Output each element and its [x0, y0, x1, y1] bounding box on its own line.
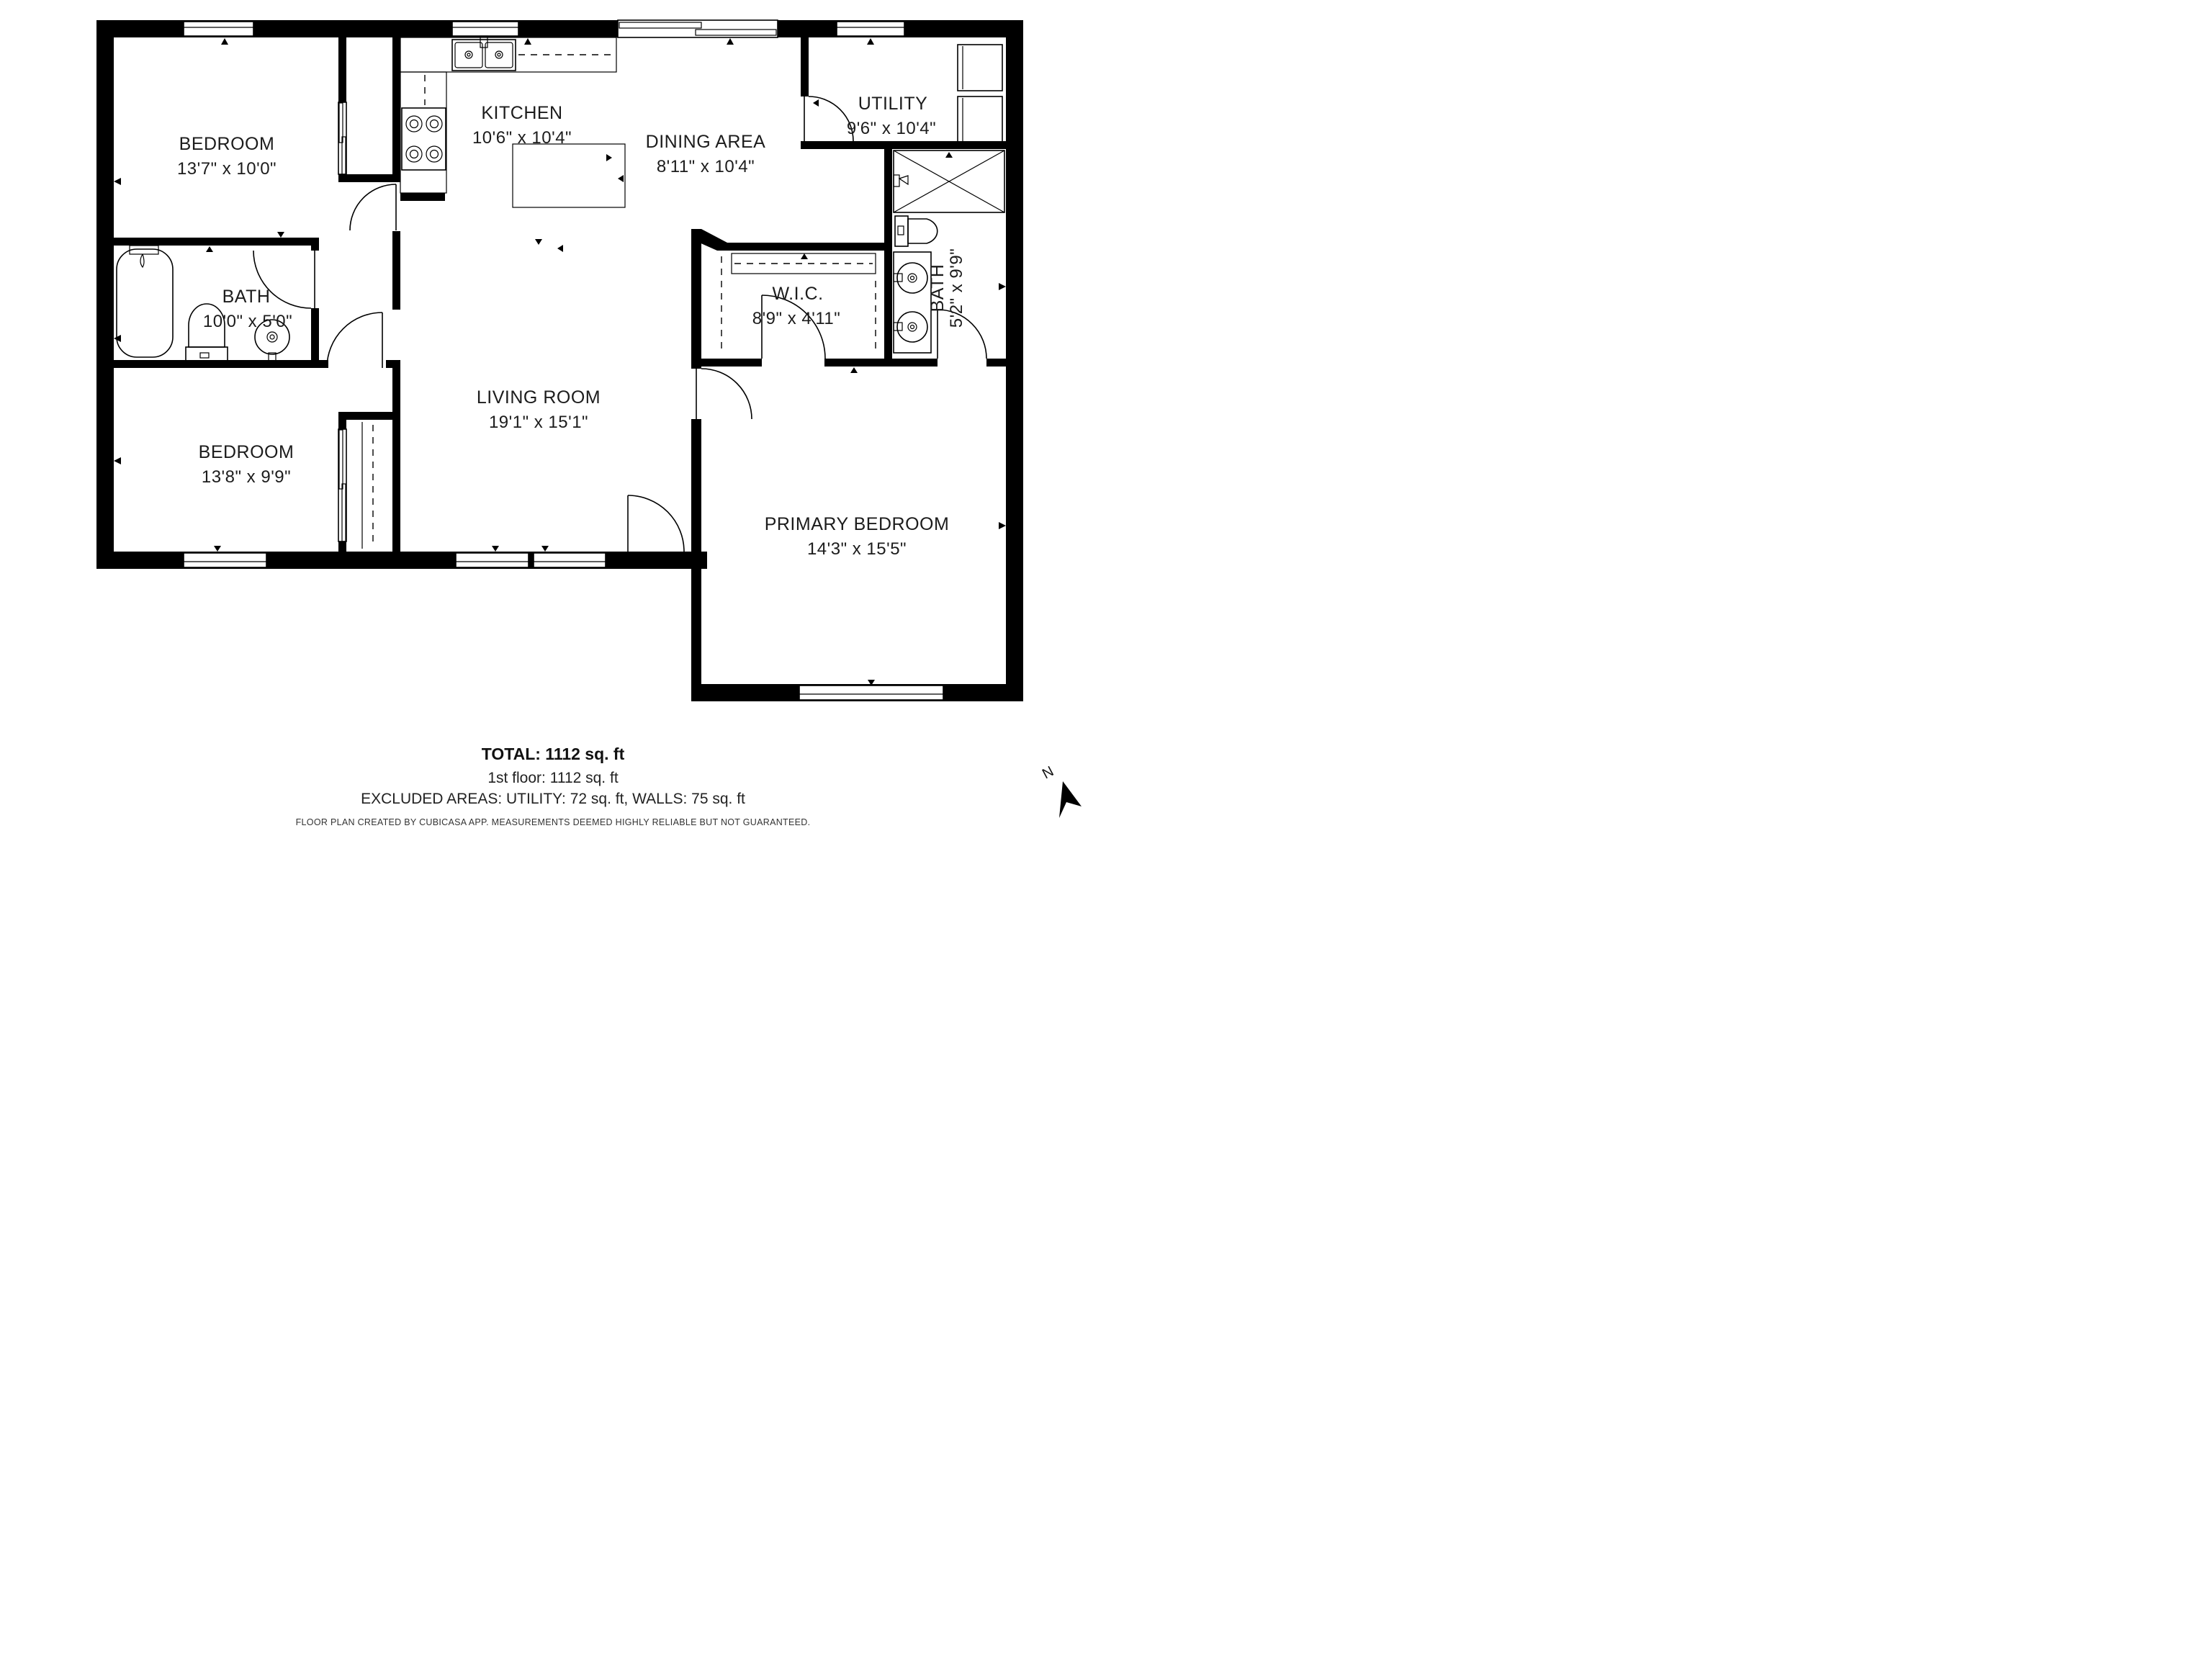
- north-arrow-icon: [1059, 781, 1082, 818]
- bedroom2-closet-dash: [362, 422, 373, 549]
- door-bedroom2: [327, 313, 382, 368]
- room-label-primary-bedroom: PRIMARY BEDROOM 14'3" x 15'5": [765, 514, 950, 559]
- stove-icon: [402, 108, 446, 170]
- kitchen-dims: 10'6" x 10'4": [472, 128, 572, 148]
- kitchen-island: [513, 144, 625, 207]
- window-kitchen-top: [452, 22, 518, 36]
- bedroom-2-dims: 13'8" x 9'9": [202, 467, 291, 487]
- room-label-bedroom-2: BEDROOM 13'8" x 9'9": [199, 442, 295, 487]
- room-label-bath-1: BATH 10'0" x 5'0": [203, 287, 292, 331]
- door-bedroom1: [350, 184, 396, 230]
- floor-plan-page: BEDROOM 13'7" x 10'0" KITCHEN 10'6" x 10…: [0, 0, 1106, 829]
- closet-slider-bedroom2: [338, 429, 346, 541]
- dining-area-name: DINING AREA: [646, 132, 766, 152]
- room-label-utility: UTILITY 9'6" x 10'4": [847, 94, 936, 138]
- door-entry: [628, 495, 684, 552]
- window-living-bottom-2: [534, 553, 606, 567]
- room-label-bath-2: BATH 5'2" x 9'9": [927, 248, 966, 328]
- window-living-bottom-1: [456, 553, 529, 567]
- room-label-dining-area: DINING AREA 8'11" x 10'4": [646, 132, 766, 176]
- closet-slider-bedroom1: [338, 102, 346, 174]
- utility-fixtures: [958, 45, 1002, 144]
- vanity-double-sink-icon: [894, 252, 931, 353]
- room-label-kitchen: KITCHEN 10'6" x 10'4": [472, 103, 572, 148]
- north-label: N: [1040, 763, 1056, 782]
- window-bedroom1-top: [184, 22, 253, 36]
- bathtub-icon: [117, 246, 173, 357]
- summary-block: TOTAL: 1112 sq. ft 1st floor: 1112 sq. f…: [296, 745, 811, 827]
- washer-icon: [958, 45, 1002, 91]
- living-room-name: LIVING ROOM: [477, 387, 601, 408]
- kitchen-sink-icon: [452, 36, 516, 71]
- shower-icon: [894, 150, 1004, 212]
- kitchen-name: KITCHEN: [481, 103, 562, 123]
- bedroom-1-name: BEDROOM: [179, 134, 275, 154]
- dining-area-dims: 8'11" x 10'4": [657, 157, 755, 176]
- room-label-living-room: LIVING ROOM 19'1" x 15'1": [477, 387, 601, 432]
- door-primary-bedroom: [696, 369, 752, 419]
- bedroom-2-name: BEDROOM: [199, 442, 295, 462]
- primary-bedroom-dims: 14'3" x 15'5": [807, 539, 907, 559]
- bath-1-name: BATH: [222, 287, 271, 307]
- bath-1-dims: 10'0" x 5'0": [203, 312, 292, 331]
- window-primary-bottom: [799, 685, 943, 700]
- doors: [253, 96, 986, 552]
- bedroom-1-dims: 13'7" x 10'0": [177, 159, 276, 179]
- summary-total: TOTAL: 1112 sq. ft: [482, 745, 625, 763]
- bath-2-name: BATH: [927, 264, 948, 313]
- window-bedroom2-bottom: [184, 553, 266, 567]
- bath-2-dims: 5'2" x 9'9": [947, 248, 966, 328]
- wic-fixtures: [721, 253, 876, 354]
- door-utility: [804, 96, 853, 141]
- living-room-dims: 19'1" x 15'1": [489, 413, 588, 432]
- floor-plan-canvas: BEDROOM 13'7" x 10'0" KITCHEN 10'6" x 10…: [0, 0, 1106, 829]
- disclaimer-text: FLOOR PLAN CREATED BY CUBICASA APP. MEAS…: [296, 817, 811, 827]
- wic-name: W.I.C.: [772, 284, 823, 304]
- dryer-icon: [958, 96, 1002, 144]
- summary-excluded-areas: EXCLUDED AREAS: UTILITY: 72 sq. ft, WALL…: [361, 791, 745, 807]
- utility-name: UTILITY: [858, 94, 928, 114]
- north-arrow: N: [1040, 763, 1082, 818]
- summary-first-floor: 1st floor: 1112 sq. ft: [487, 770, 618, 786]
- primary-bedroom-name: PRIMARY BEDROOM: [765, 514, 950, 534]
- room-label-bedroom-1: BEDROOM 13'7" x 10'0": [177, 134, 276, 179]
- window-utility-top: [837, 22, 904, 36]
- toilet-icon-bath2: [895, 216, 938, 246]
- sliding-door-dining: [618, 20, 778, 37]
- wic-dims: 8'9" x 4'11": [752, 309, 841, 328]
- room-labels: BEDROOM 13'7" x 10'0" KITCHEN 10'6" x 10…: [177, 94, 966, 559]
- utility-dims: 9'6" x 10'4": [847, 119, 936, 138]
